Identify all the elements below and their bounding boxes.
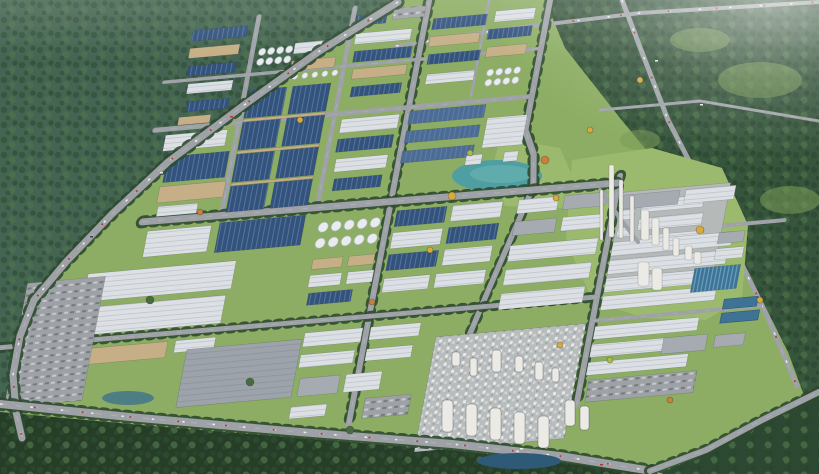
stack-2 (619, 180, 623, 238)
car (90, 236, 93, 238)
accent-tree (553, 195, 559, 201)
tower-4 (673, 238, 679, 256)
hall-b3 (238, 119, 281, 150)
car (230, 116, 233, 118)
admin-wing-west (465, 154, 483, 165)
accent-tree (297, 117, 303, 123)
aerial-scene (0, 0, 819, 474)
hall-b7 (226, 183, 269, 212)
accent-tree (369, 299, 375, 305)
chem-silo-4 (514, 412, 525, 444)
chem-tower-2 (470, 358, 477, 376)
accent-tree (667, 397, 673, 403)
chem-tower-6 (552, 368, 559, 382)
pond-plant (477, 453, 561, 469)
chem-tower-3 (492, 350, 501, 372)
bldg-r10 (717, 231, 745, 244)
car (160, 172, 163, 174)
hall-b6 (275, 147, 318, 178)
silo-ne-2 (694, 252, 701, 264)
tower-1 (641, 210, 649, 240)
accent-tree (246, 378, 254, 386)
cooling-tower-1 (638, 262, 649, 286)
top-light-overlay (0, 0, 819, 60)
chem-tower-5 (535, 362, 543, 380)
car (600, 464, 603, 466)
tower-2 (652, 218, 659, 245)
hall-b5 (231, 151, 274, 182)
bldg-k5 (297, 375, 340, 397)
accent-tree (448, 192, 456, 200)
tower-3 (663, 228, 669, 250)
meadow-3 (760, 186, 819, 214)
wtp-grid (690, 264, 741, 292)
chem-silo-3 (490, 408, 501, 440)
accent-tree (467, 150, 473, 156)
rooftop-parking-bldg (362, 394, 412, 418)
cooling-tower-2 (652, 268, 662, 290)
car (520, 448, 523, 450)
chem-silo-5 (538, 416, 549, 448)
chem-cooling-1 (565, 400, 575, 426)
accent-tree (757, 297, 763, 303)
chem-tower-4 (515, 356, 523, 372)
stack-4 (630, 196, 634, 242)
accent-tree (557, 342, 563, 348)
chem-tower-1 (452, 352, 460, 366)
chem-cooling-2 (580, 406, 589, 430)
pond-west (102, 391, 154, 405)
chem-silo-1 (442, 400, 453, 432)
stack-3 (600, 190, 603, 240)
bldg-k6 (343, 371, 382, 392)
hall-b8 (270, 179, 313, 208)
accent-tree (197, 209, 203, 215)
industrial-park-rendering (0, 0, 819, 474)
bldg-h4 (346, 270, 374, 284)
accent-tree (696, 226, 704, 234)
accent-tree (346, 426, 354, 434)
hall-b2 (288, 83, 331, 114)
silo-ne-1 (685, 246, 692, 260)
accent-tree (427, 247, 433, 253)
accent-tree (607, 357, 613, 363)
mega-gray-hall (176, 339, 302, 407)
chem-silo-2 (466, 404, 477, 436)
accent-tree (146, 296, 154, 304)
